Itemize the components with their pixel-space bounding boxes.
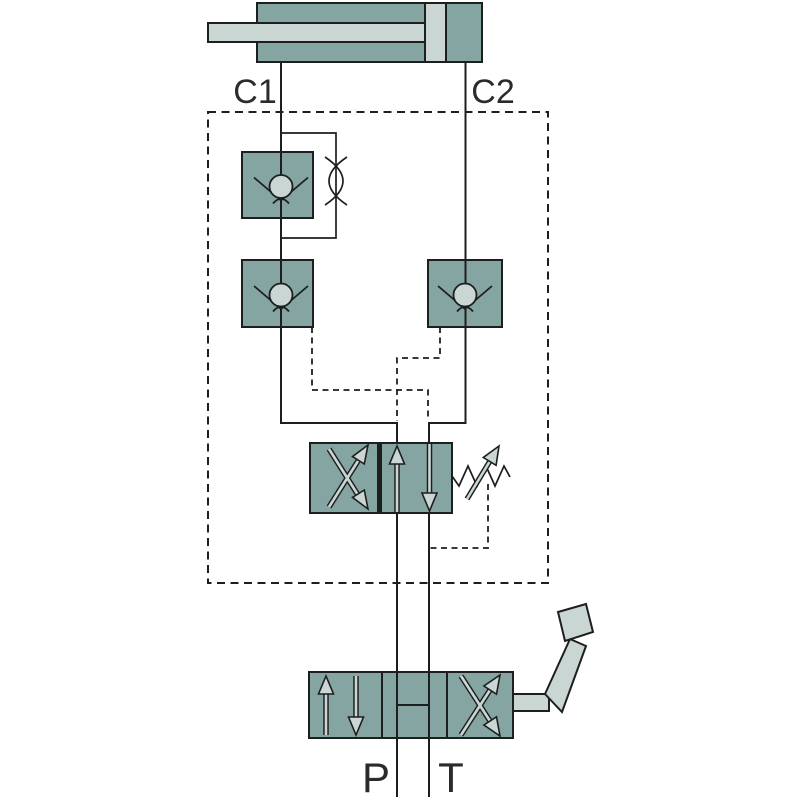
lever-arm [513, 694, 549, 711]
line-c1 [281, 62, 397, 444]
port-label-c1: C1 [233, 73, 276, 111]
pilot-line-from-right-check-valve [397, 327, 440, 421]
pilot-lines [312, 327, 488, 548]
line-c2 [429, 62, 466, 444]
lever-shaft [545, 639, 586, 712]
cylinder-rod [208, 23, 425, 42]
lever-handle-icon [513, 604, 593, 712]
pilot-line-from-left-check-valve [312, 327, 428, 421]
poppet-ball [454, 284, 477, 307]
port-label-c2: C2 [471, 73, 514, 111]
port-label-t: T [438, 754, 464, 800]
port-label-p: P [362, 754, 390, 800]
poppet-ball [270, 284, 293, 307]
lever-knob [558, 604, 593, 641]
hydraulic-circuit-diagram: C1 C2 P T [0, 0, 800, 800]
schematic-canvas: C1 C2 P T [0, 0, 800, 800]
orifice-arc-right [329, 157, 347, 205]
cylinder-piston [425, 3, 446, 62]
orifice-arc-left [325, 157, 343, 205]
hydraulic-cylinder-icon [208, 3, 482, 62]
arrow-head [483, 446, 499, 465]
poppet-ball [270, 175, 293, 198]
